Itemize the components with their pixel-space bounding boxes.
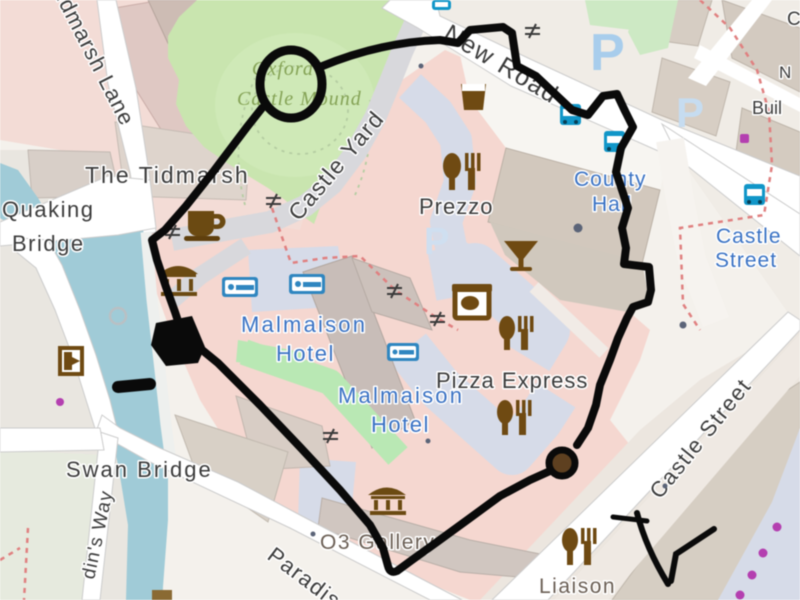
svg-text:Prezzo: Prezzo [419,194,493,219]
svg-text:Bridge: Bridge [12,231,85,256]
svg-text:Malmaison: Malmaison [241,312,367,337]
svg-text:Street: Street [715,249,777,272]
svg-text:P: P [424,221,449,263]
svg-text:Castle Mound: Castle Mound [237,88,362,110]
svg-text:Hotel: Hotel [371,412,430,437]
svg-text:Liaison: Liaison [539,575,616,598]
svg-text:C: C [787,9,800,30]
svg-text:The Tidmarsh: The Tidmarsh [85,162,250,188]
svg-text:P: P [676,89,704,136]
svg-text:County: County [574,168,647,191]
svg-text:Malmaison: Malmaison [338,383,464,408]
svg-text:Swan Bridge: Swan Bridge [66,457,213,482]
svg-text:N: N [779,63,791,82]
svg-text:Castle: Castle [716,225,782,248]
svg-text:Quaking: Quaking [2,197,94,222]
svg-text:Buil: Buil [752,98,782,118]
svg-text:P: P [590,24,625,82]
svg-text:Hotel: Hotel [276,341,335,366]
